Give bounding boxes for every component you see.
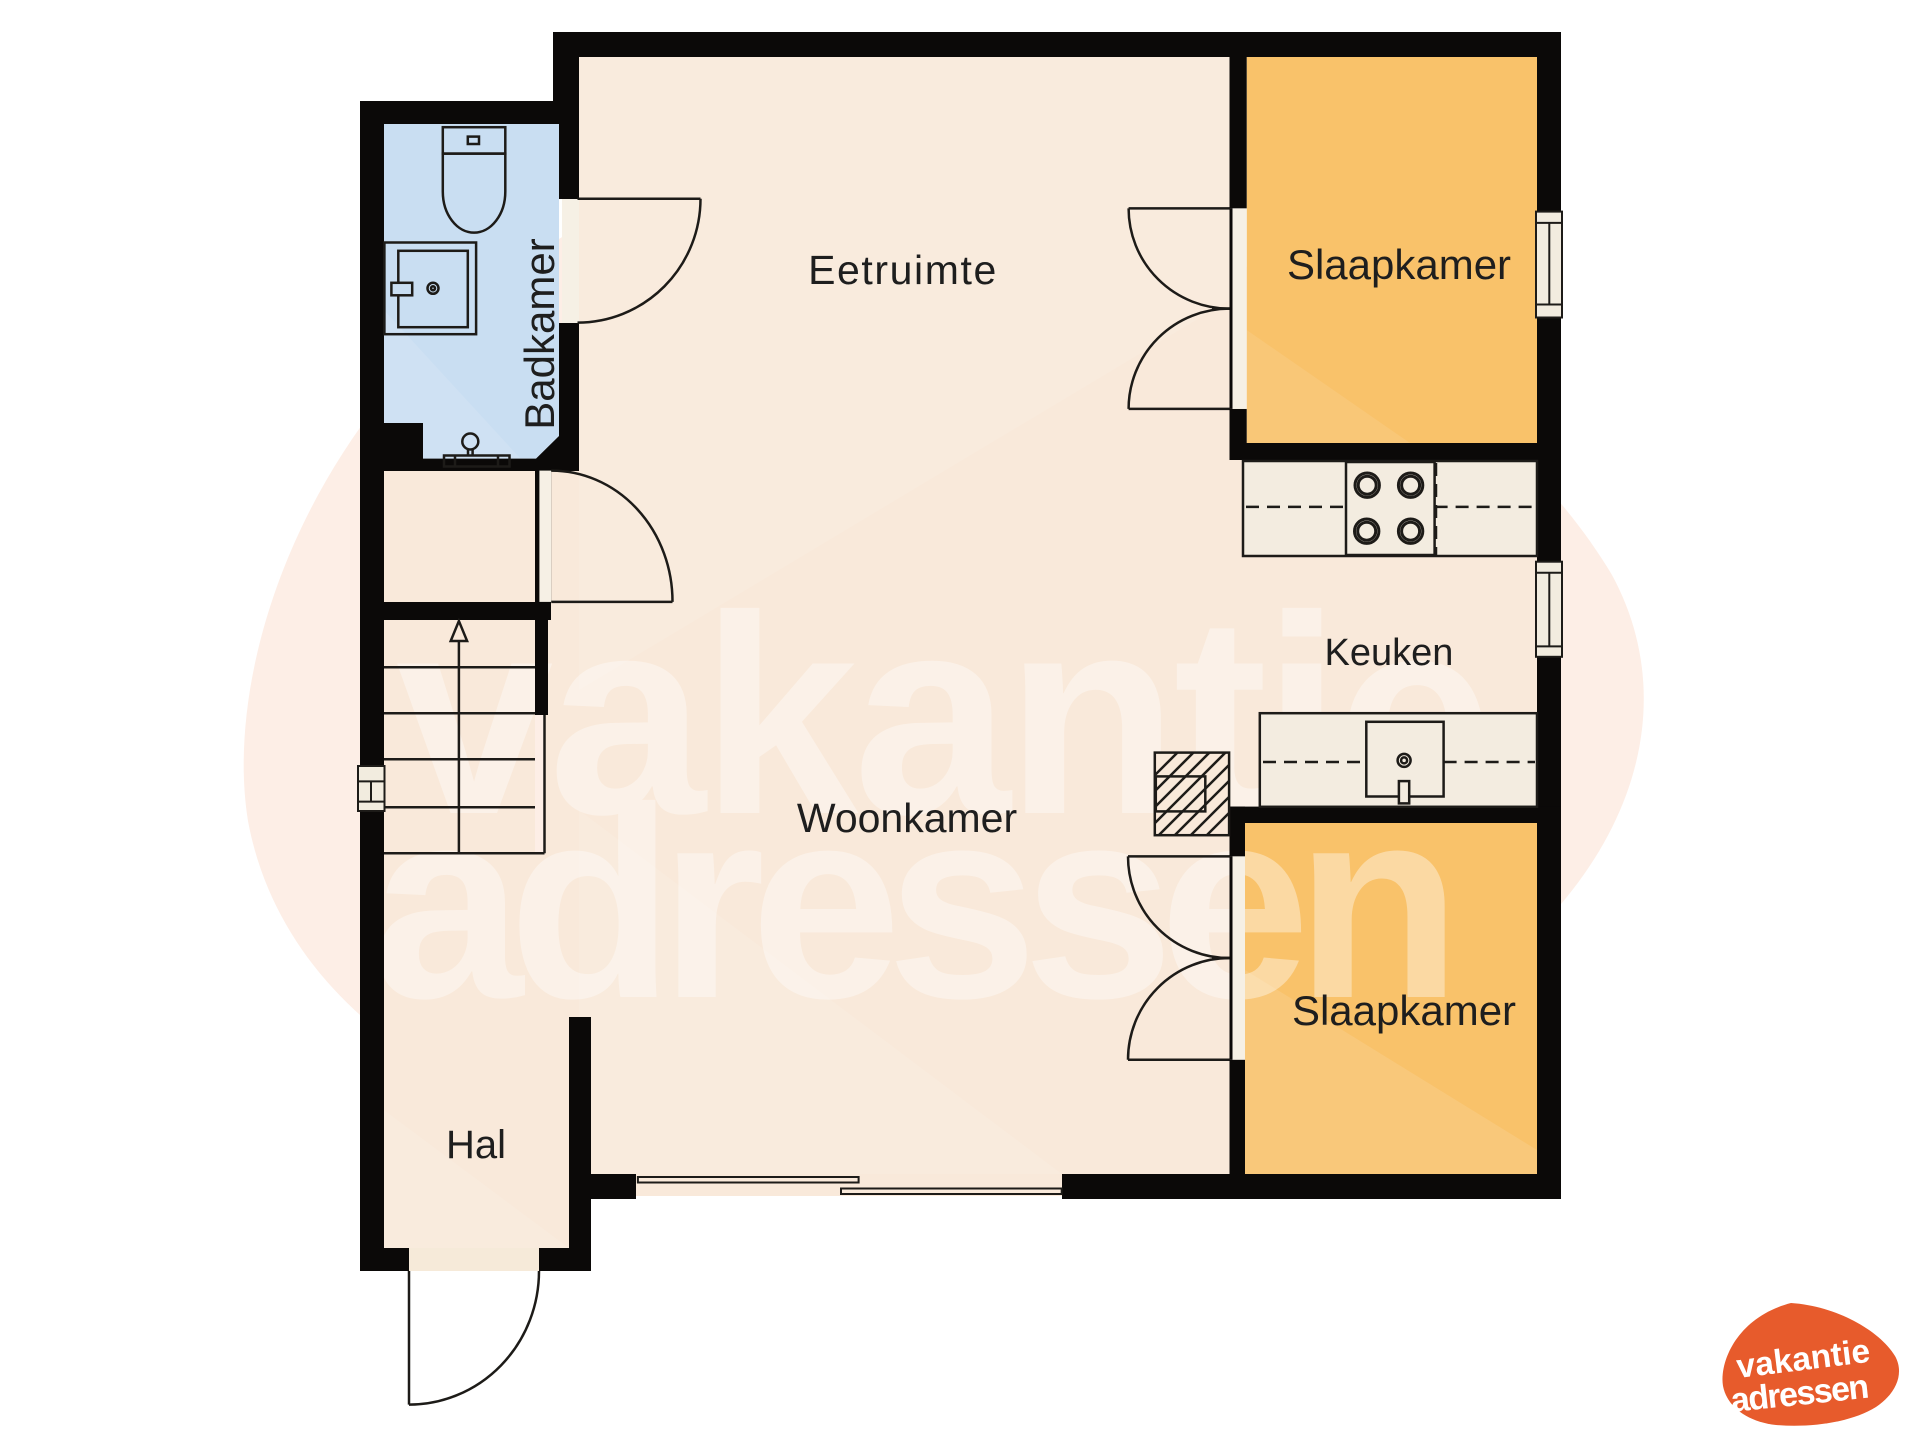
svg-text:Keuken: Keuken (1325, 632, 1454, 674)
svg-text:Slaapkamer: Slaapkamer (1292, 987, 1516, 1034)
svg-text:Hal: Hal (446, 1123, 506, 1167)
svg-text:Slaapkamer: Slaapkamer (1287, 241, 1511, 288)
svg-text:Woonkamer: Woonkamer (797, 795, 1017, 841)
svg-text:Eetruimte: Eetruimte (808, 247, 998, 293)
svg-text:Badkamer: Badkamer (516, 238, 563, 429)
